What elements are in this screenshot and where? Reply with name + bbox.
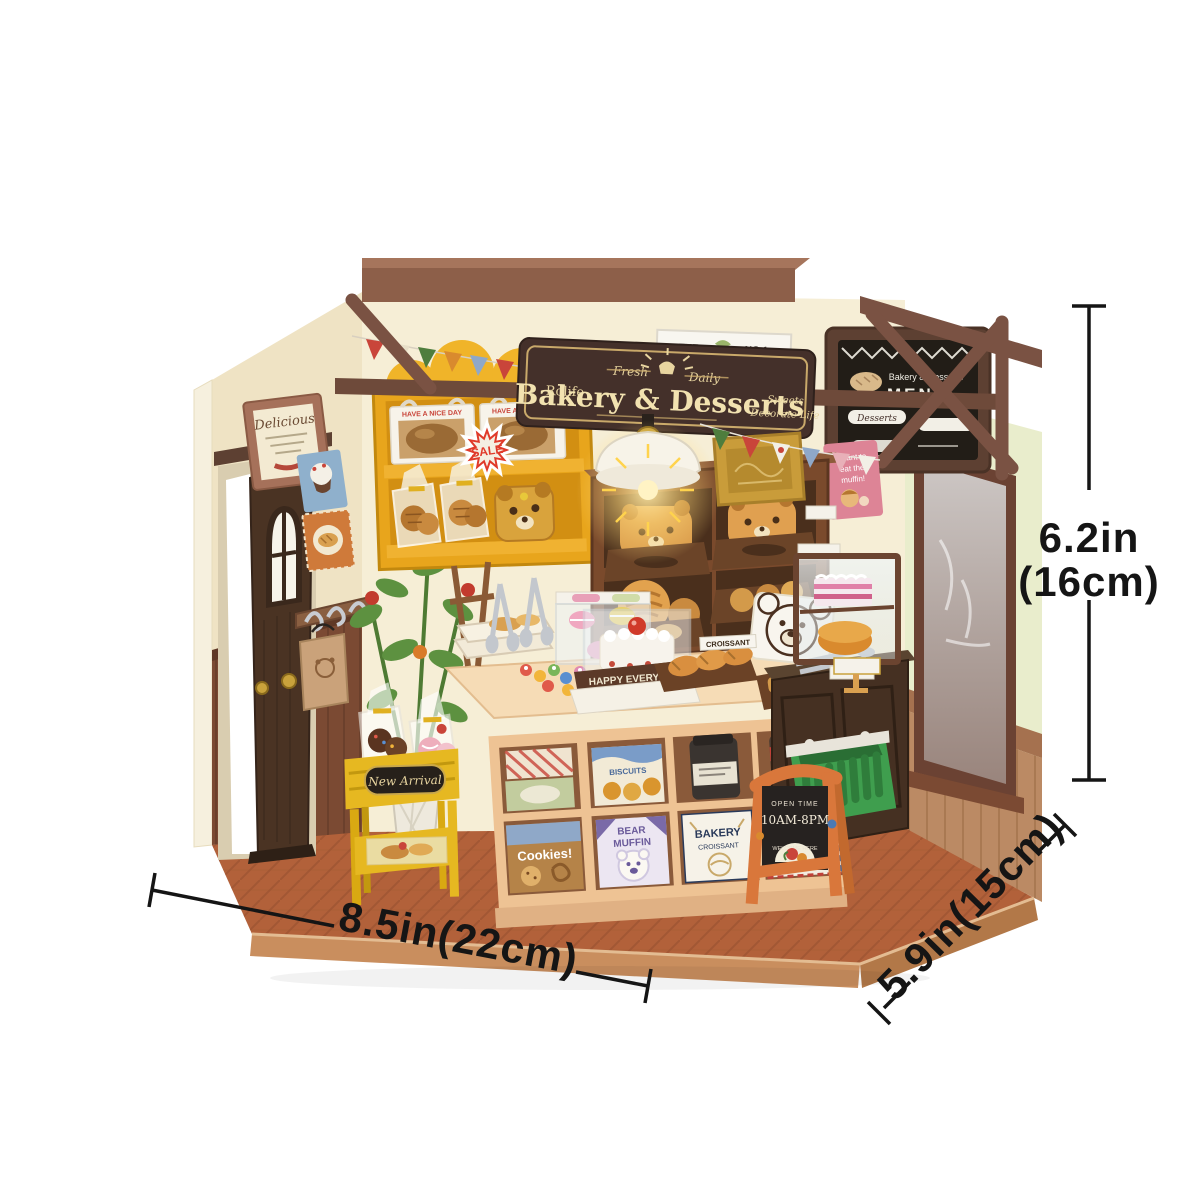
product-photo-stage: Delicious — [0, 0, 1200, 1200]
orange-cake — [818, 621, 872, 655]
muffin-box-line1: BEAR — [617, 825, 647, 838]
wall-sticker-cake — [296, 449, 348, 513]
cubby-jar-dark — [689, 733, 741, 800]
muffin-box-line2: MUFFIN — [613, 837, 651, 850]
gold-frame — [714, 433, 804, 505]
sign-tagline-1: Sweets — [767, 394, 804, 407]
open-sign-line2: 10AM-8PM — [761, 813, 829, 827]
berry-red-1 — [365, 591, 379, 605]
new-arrival-text: New Arrival — [367, 773, 442, 789]
hutch-price-tag — [806, 506, 836, 519]
miniature-bakery-scene: Delicious — [0, 0, 1200, 1200]
top-ledge-front — [362, 268, 795, 302]
bread-box-1: HAVE A NICE DAY — [390, 399, 476, 464]
wall-sticker-bread — [302, 510, 355, 572]
height-label-in: 6.2in — [1039, 514, 1140, 561]
berry-red-2 — [461, 583, 475, 597]
cubby-bakery-box: BAKERY CROISSANT — [682, 810, 756, 882]
door-knob-outer — [256, 682, 268, 694]
cubby-muffin-box: BEAR MUFFIN — [596, 816, 670, 888]
left-wall-edge — [194, 380, 212, 847]
pink-layer-cake — [814, 576, 872, 607]
cubby-cookies-box: Cookies! — [506, 821, 584, 893]
cubby-biscuit-box: BISCUITS — [591, 744, 664, 806]
height-label-cm: (16cm) — [1018, 558, 1159, 605]
berry-orange — [413, 645, 427, 659]
shop-window — [906, 448, 1024, 814]
open-sign-line1: OPEN TIME — [771, 801, 818, 808]
bear-face-bread — [494, 481, 554, 541]
menu-item-1: Desserts — [856, 414, 897, 424]
door-knob-inner — [282, 674, 296, 688]
